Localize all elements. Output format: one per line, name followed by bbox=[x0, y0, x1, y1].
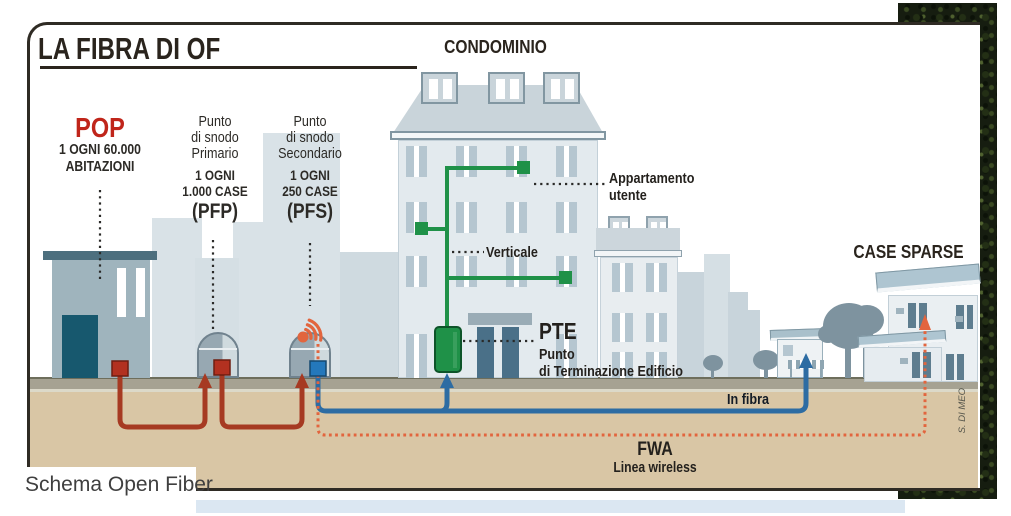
page-bottom-bar bbox=[196, 500, 905, 513]
pfp-line: Punto bbox=[171, 114, 258, 130]
pfs-label-block: Punto di snodo Secondario 1 OGNI 250 CAS… bbox=[266, 114, 353, 225]
pop-name: POP bbox=[41, 114, 159, 142]
wifi-icon bbox=[298, 320, 321, 342]
apartment-outlet-square bbox=[517, 161, 530, 174]
condominio-title: CONDOMINIO bbox=[422, 36, 569, 58]
pfp-label-block: Punto di snodo Primario 1 OGNI 1.000 CAS… bbox=[171, 114, 258, 225]
pfp-line: Primario bbox=[171, 146, 258, 162]
orange-arrow-icon bbox=[919, 314, 931, 330]
pop-detail: ABITAZIONI bbox=[41, 159, 159, 176]
apartment-label: Appartamento utente bbox=[609, 170, 694, 204]
apartment-outlet-square bbox=[415, 222, 428, 235]
pfp-code: (PFP) bbox=[171, 199, 258, 225]
pfs-code: (PFS) bbox=[266, 199, 353, 225]
pop-label-block: POP 1 OGNI 60.000 ABITAZIONI bbox=[41, 114, 159, 176]
title-underline bbox=[40, 66, 417, 69]
fiber-branch-to-pte bbox=[440, 386, 447, 411]
red-arrow-icon bbox=[198, 373, 212, 388]
pfp-detail: 1 OGNI bbox=[171, 167, 258, 183]
pte-box-highlight bbox=[453, 332, 457, 368]
case-sparse-title: CASE SPARSE bbox=[839, 241, 978, 263]
pte-label-block: PTE Punto di Terminazione Edificio bbox=[539, 319, 683, 380]
in-fibra-label: In fibra bbox=[727, 391, 769, 408]
fwa-title: FWA bbox=[588, 440, 722, 460]
vertical-label: Verticale bbox=[486, 244, 538, 261]
author-credit: S. DI MEO bbox=[957, 388, 968, 433]
blue-arrow-icon bbox=[799, 353, 813, 368]
pfs-line: Secondario bbox=[266, 146, 353, 162]
fwa-label-block: FWA Linea wireless bbox=[588, 440, 722, 476]
pfs-line: Punto bbox=[266, 114, 353, 130]
pfs-line: di snodo bbox=[266, 130, 353, 146]
diagram-title: LA FIBRA DI OF bbox=[38, 33, 220, 65]
blue-arrow-icon bbox=[440, 373, 454, 388]
pop-detail: 1 OGNI 60.000 bbox=[41, 142, 159, 159]
red-fiber-lines bbox=[120, 370, 302, 427]
caption-box: Schema Open Fiber bbox=[0, 467, 196, 507]
apartment-label-line: utente bbox=[609, 187, 694, 204]
pfs-connector-square bbox=[310, 361, 326, 376]
infographic-page: LA FIBRA DI OF CONDOMINIO CASE SPARSE PO… bbox=[0, 0, 1011, 516]
red-arrow-icon bbox=[295, 373, 309, 388]
apartment-label-line: Appartamento bbox=[609, 170, 694, 187]
pfp-line: di snodo bbox=[171, 130, 258, 146]
apartment-outlet-square bbox=[559, 271, 572, 284]
fwa-subtitle: Linea wireless bbox=[588, 460, 722, 476]
pfp-connector-square bbox=[214, 360, 230, 375]
fiber-pop-to-pfp bbox=[120, 370, 205, 427]
pop-connector-square bbox=[112, 361, 128, 376]
pte-line: di Terminazione Edificio bbox=[539, 363, 683, 380]
caption-text: Schema Open Fiber bbox=[25, 473, 213, 497]
fiber-pfp-to-pfs bbox=[222, 370, 302, 427]
pfp-detail: 1.000 CASE bbox=[171, 183, 258, 199]
pfs-detail: 250 CASE bbox=[266, 183, 353, 199]
pte-line: Punto bbox=[539, 346, 683, 363]
pte-code: PTE bbox=[539, 319, 683, 343]
pte-box bbox=[435, 327, 461, 372]
pfs-detail: 1 OGNI bbox=[266, 167, 353, 183]
